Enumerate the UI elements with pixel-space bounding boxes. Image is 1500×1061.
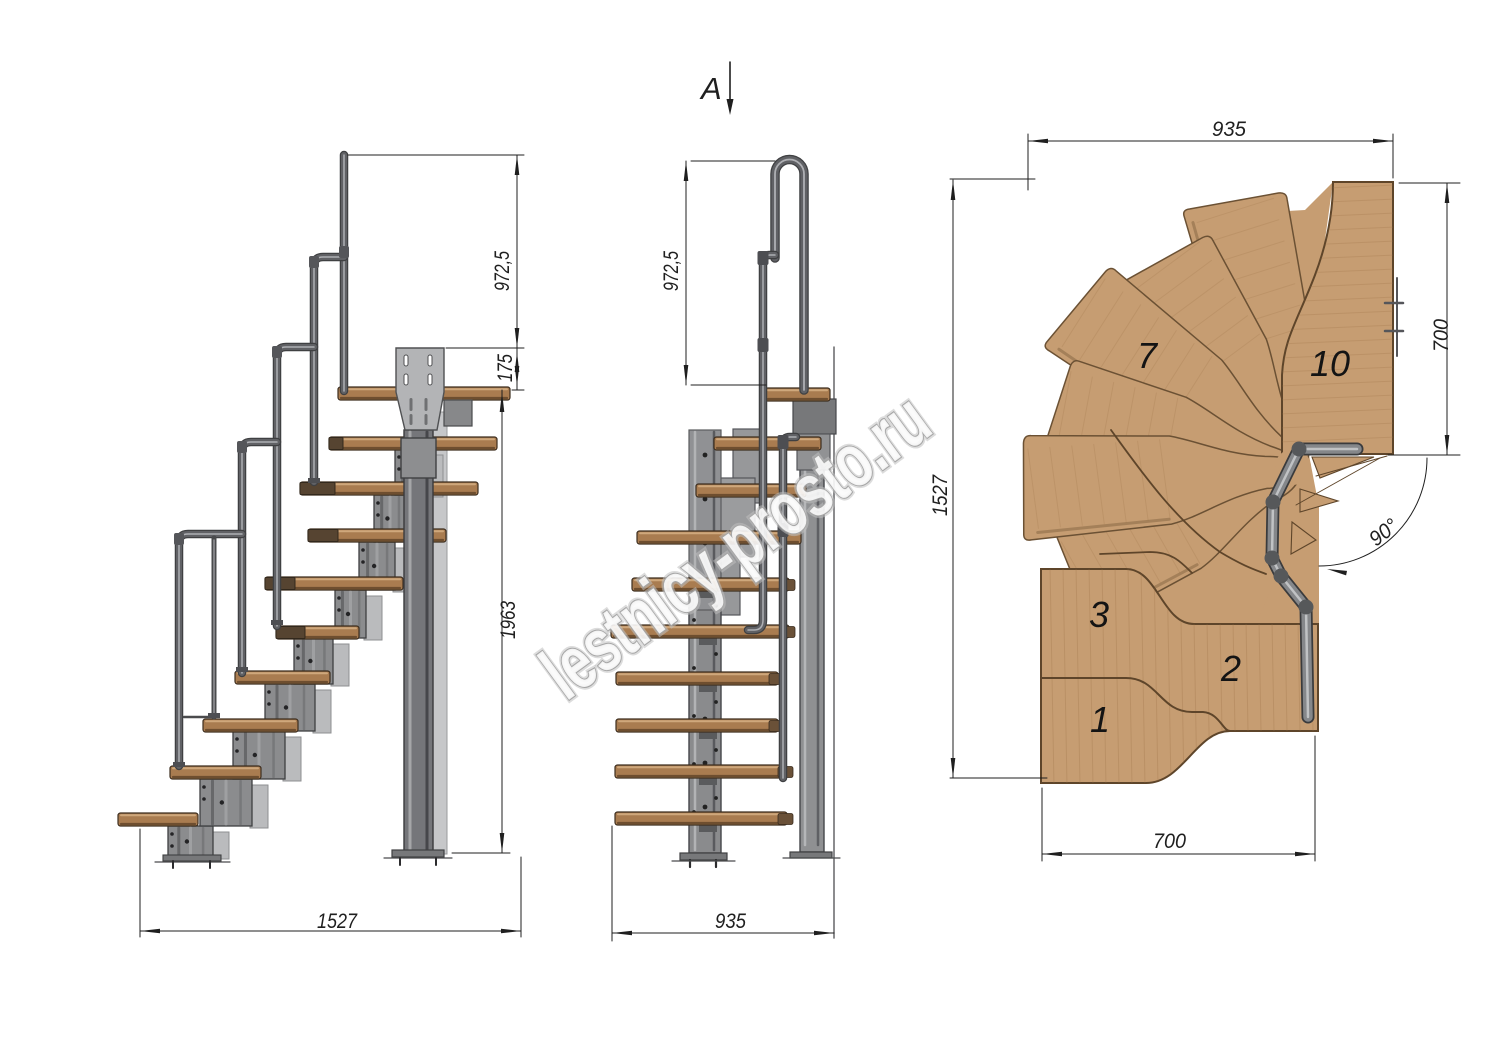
svg-text:1: 1 [1090, 699, 1110, 740]
svg-text:175: 175 [494, 354, 517, 382]
svg-text:A: A [699, 71, 722, 106]
svg-text:7: 7 [1137, 335, 1159, 376]
svg-text:3: 3 [1089, 594, 1109, 635]
svg-text:972,5: 972,5 [491, 251, 514, 291]
svg-text:700: 700 [1430, 319, 1453, 352]
svg-text:10: 10 [1310, 343, 1350, 384]
svg-text:700: 700 [1153, 830, 1186, 853]
svg-text:2: 2 [1220, 648, 1241, 689]
svg-text:1963: 1963 [497, 601, 520, 639]
svg-text:935: 935 [715, 910, 746, 933]
svg-text:1527: 1527 [929, 474, 952, 516]
svg-text:972,5: 972,5 [660, 251, 683, 291]
svg-text:1527: 1527 [317, 910, 358, 933]
svg-text:935: 935 [1212, 118, 1246, 141]
